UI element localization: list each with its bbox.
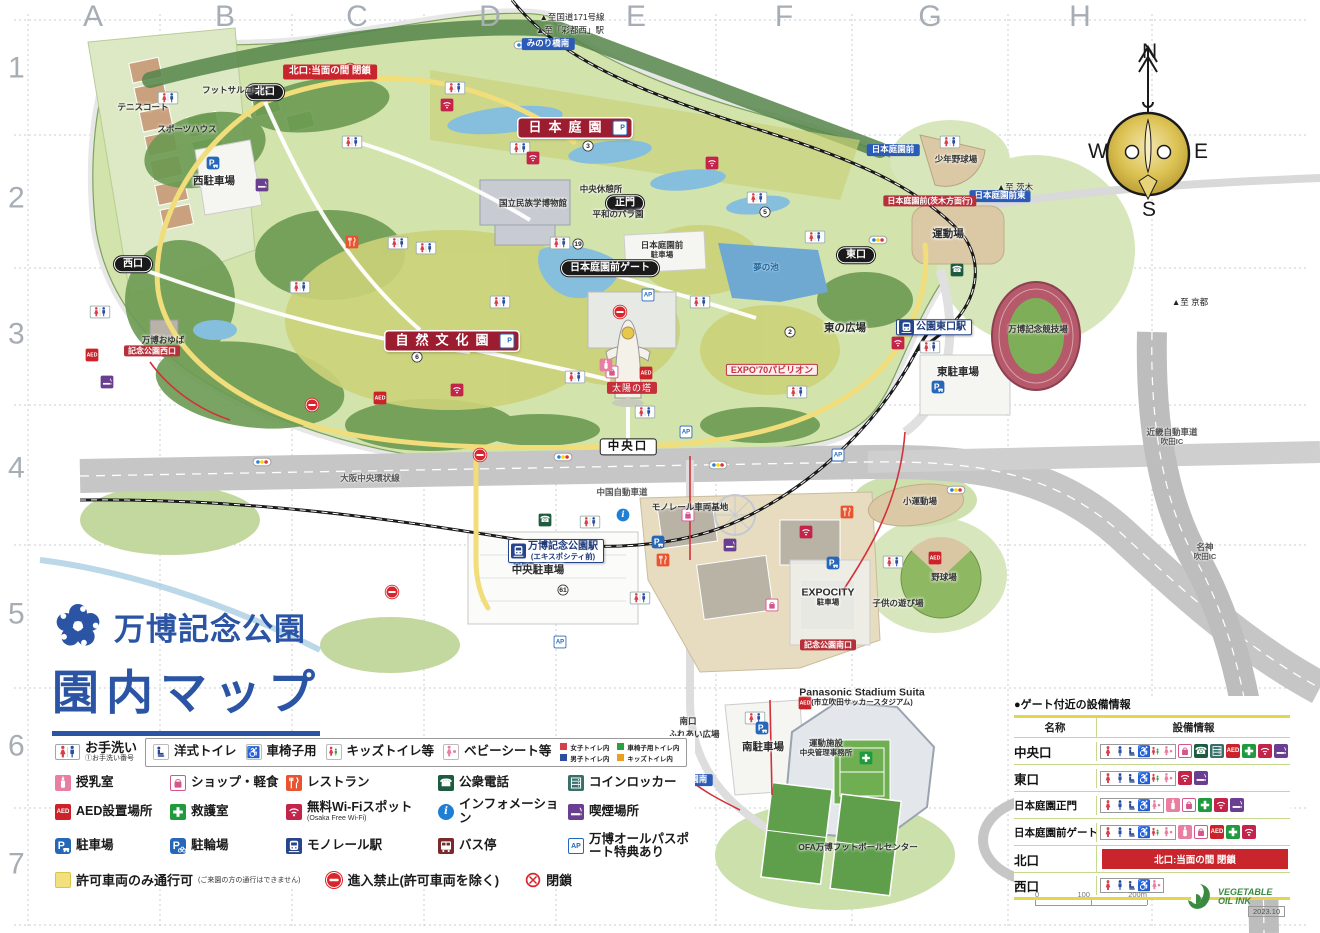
legend-label: 洋式トイレ — [174, 745, 237, 759]
scale-bar: 0100200m — [1035, 890, 1147, 906]
legend-item: お手洗い①お手洗い番号 — [55, 741, 137, 763]
color-key-item: 女子トイレ内 — [560, 742, 609, 752]
grid-column-label: H — [1069, 0, 1091, 34]
smoking-icon — [1274, 744, 1288, 758]
legend-label: 救護室 — [191, 805, 229, 819]
legend-item: ☎公衆電話 — [438, 775, 566, 791]
legend-label: 進入禁止(許可車両を除く) — [347, 870, 499, 889]
grid-row-label: 1 — [8, 51, 25, 85]
gate-facilities: 北口:当面の間 閉鎖 — [1096, 846, 1290, 872]
baby-icon — [1162, 772, 1174, 785]
toilet-icon — [55, 744, 80, 760]
nursing-icon — [1166, 798, 1180, 812]
smoking-icon — [1230, 798, 1244, 812]
page-title: 園内マップ — [52, 654, 322, 723]
gate-facilities-table: ●ゲート付近の設備情報 名称 設備情報 中央口♿☎AED東口♿日本庭園正門♿日本… — [1014, 696, 1290, 900]
wheelchair-icon: ♿ — [1138, 826, 1150, 839]
legend-item: 救護室 — [170, 798, 284, 826]
baby-icon — [1150, 879, 1162, 892]
gate-toilet-group: ♿ — [1100, 744, 1176, 759]
edition-date: 2023.10 — [1248, 906, 1285, 917]
smoking-icon — [568, 804, 584, 820]
gate-facilities: ♿☎AED — [1096, 742, 1290, 761]
compass-north-label: N — [1142, 40, 1157, 64]
gate-col-facilities: 設備情報 — [1096, 718, 1290, 737]
legend-sublabel: (ご来園の方の通行はできません) — [198, 875, 300, 885]
legend-sublabel: ①お手洗い番号 — [85, 755, 137, 763]
wifi-icon — [1242, 825, 1256, 839]
legend-item: AP万博オールパスポート特典あり — [568, 833, 695, 861]
male-icon — [1114, 745, 1126, 758]
aed-icon: AED — [55, 804, 71, 820]
compass-south-label: S — [1142, 198, 1156, 222]
legend-item: 洋式トイレ — [153, 744, 237, 760]
scale-tick-label: 0 — [1035, 890, 1039, 899]
gate-facilities: ♿ — [1096, 796, 1290, 815]
gate-toilet-group: ♿ — [1100, 825, 1176, 840]
wheelchair-icon: ♿ — [1138, 799, 1150, 812]
grid-column-label: F — [775, 0, 793, 34]
compass-west-label: W — [1088, 140, 1108, 164]
gate-facilities: ♿ — [1096, 769, 1290, 788]
wheelchair-icon: ♿ — [1138, 772, 1150, 785]
legend-label: レストラン — [307, 776, 370, 790]
legend-label: バス停 — [459, 839, 497, 853]
male-icon — [1114, 826, 1126, 839]
female-icon — [1102, 799, 1114, 812]
legend-label: 無料Wi-Fiスポット — [307, 801, 412, 815]
legend-label: 授乳室 — [76, 776, 114, 790]
legend-item: ♿車椅子用 — [246, 744, 317, 760]
grid-column-label: C — [346, 0, 368, 34]
gate-table-header: 名称 設備情報 — [1014, 715, 1290, 738]
scale-bar-labels: 0100200m — [1035, 890, 1147, 899]
nursing-icon — [1178, 825, 1192, 839]
shop-icon — [170, 775, 186, 791]
firstaid-icon — [170, 804, 186, 820]
western-icon — [153, 744, 169, 760]
firstaid-icon — [1198, 798, 1212, 812]
legend-item: ショップ・軽食 — [170, 775, 284, 791]
aed-icon: AED — [1210, 825, 1224, 839]
legend-label: 駐輪場 — [191, 839, 229, 853]
legend-label: 公衆電話 — [459, 776, 509, 790]
gate-name: 北口 — [1014, 850, 1096, 869]
legend-item: P駐輪場 — [170, 833, 284, 861]
legend-sublabel: (Osaka Free Wi-Fi) — [307, 815, 412, 823]
female-icon — [1102, 745, 1114, 758]
shop-icon — [1194, 825, 1208, 839]
park-map-page: ABCDEFGH 1234567 AEDAEDAEDAEDAEDPPPPPPPA… — [0, 0, 1320, 933]
wifi-icon — [286, 804, 302, 820]
color-swatch — [560, 743, 567, 750]
monorail-icon — [286, 838, 302, 854]
kids-icon — [326, 744, 342, 760]
color-key-item: キッズトイレ内 — [617, 753, 679, 763]
legend-item: コインロッカー — [568, 775, 695, 791]
scale-tick-label: 200m — [1128, 890, 1147, 899]
scale-tick-label: 100 — [1077, 890, 1090, 899]
wifi-icon — [1258, 744, 1272, 758]
grid-column-label: G — [918, 0, 941, 34]
firstaid-icon — [1226, 825, 1240, 839]
western-icon — [1126, 826, 1138, 839]
legend-item: 授乳室 — [55, 775, 168, 791]
wheelchair-icon: ♿ — [1138, 745, 1150, 758]
gate-table-row: 中央口♿☎AED — [1014, 738, 1290, 765]
legend-label: 万博オールパスポート特典あり — [589, 833, 695, 861]
grid-row-label: 2 — [8, 181, 25, 215]
gate-toilet-group: ♿ — [1100, 771, 1176, 786]
female-icon — [1102, 772, 1114, 785]
baby-icon — [1162, 745, 1174, 758]
park-name: 万博記念公園 — [114, 604, 306, 649]
kids-icon — [1150, 826, 1162, 839]
legend-label: 車椅子用 — [267, 745, 317, 759]
grid-column-label: A — [83, 0, 103, 34]
restaurant-icon — [286, 775, 302, 791]
legend-label: 許可車両のみ通行可 — [76, 870, 193, 889]
color-key-item: 車椅子用トイレ内 — [617, 742, 679, 752]
legend-item: 無料Wi-Fiスポット(Osaka Free Wi-Fi) — [286, 798, 436, 826]
legend-label: コインロッカー — [589, 776, 677, 790]
shop-icon — [1182, 798, 1196, 812]
legend-toilet-color-key: 女子トイレ内車椅子用トイレ内男子トイレ内キッズトイレ内 — [560, 742, 679, 763]
wifi-icon — [1178, 771, 1192, 785]
grid-row-label: 4 — [8, 451, 25, 485]
legend-label: お手洗い — [85, 741, 137, 755]
color-swatch — [560, 754, 567, 761]
gate-table-row: 日本庭園前ゲート♿AED — [1014, 819, 1290, 846]
kids-icon — [1150, 745, 1162, 758]
grid-row-label: 6 — [8, 729, 25, 763]
wifi-icon — [1214, 798, 1228, 812]
legend-item: ベビーシート等 — [443, 744, 551, 760]
legend-item: P駐車場 — [55, 833, 168, 861]
female-icon — [1102, 826, 1114, 839]
leaf-icon — [1185, 882, 1215, 912]
phone-icon: ☎ — [1194, 744, 1208, 758]
aed-icon: AED — [1226, 744, 1240, 758]
legend-label: 喫煙場所 — [589, 805, 639, 819]
closed-icon — [525, 872, 541, 888]
male-icon — [1114, 799, 1126, 812]
bikeparking-icon: P — [170, 838, 186, 854]
color-swatch — [617, 754, 624, 761]
gate-facilities: ♿AED — [1096, 823, 1290, 842]
gate-table-row: 日本庭園正門♿ — [1014, 792, 1290, 819]
wheelchair-icon: ♿ — [246, 744, 262, 760]
legend-label: AED設置場所 — [76, 805, 152, 819]
gate-table-title: ●ゲート付近の設備情報 — [1014, 696, 1290, 712]
scale-bar-line — [1035, 900, 1147, 906]
gate-table-rows: 中央口♿☎AED東口♿日本庭園正門♿日本庭園前ゲート♿AED北口北口:当面の間 … — [1014, 738, 1290, 900]
parking-icon: P — [55, 838, 71, 854]
legend-route-item: 許可車両のみ通行可(ご来園の方の通行はできません) — [55, 870, 300, 889]
gate-closed-banner: 北口:当面の間 閉鎖 — [1102, 849, 1288, 869]
color-swatch — [617, 743, 624, 750]
legend: お手洗い①お手洗い番号洋式トイレ♿車椅子用キッズトイレ等ベビーシート等女子トイレ… — [55, 736, 695, 889]
gate-name: 日本庭園前ゲート — [1014, 825, 1096, 840]
western-icon — [1126, 799, 1138, 812]
legend-toilet-row: お手洗い①お手洗い番号洋式トイレ♿車椅子用キッズトイレ等ベビーシート等女子トイレ… — [55, 736, 695, 768]
legend-grid: 授乳室ショップ・軽食レストラン☎公衆電話コインロッカーAEDAED設置場所救護室… — [55, 775, 695, 860]
western-icon — [1126, 772, 1138, 785]
male-icon — [1114, 772, 1126, 785]
grid-column-label: E — [626, 0, 646, 34]
svg-text:P: P — [173, 840, 180, 852]
info-icon: i — [438, 804, 454, 820]
bus-icon — [438, 838, 454, 854]
legend-label: ショップ・軽食 — [191, 776, 279, 790]
compass-rose-icon — [1093, 42, 1203, 222]
legend-item: AEDAED設置場所 — [55, 798, 168, 826]
gate-toilet-group: ♿ — [1100, 798, 1164, 813]
gate-table-row: 北口北口:当面の間 閉鎖 — [1014, 846, 1290, 873]
western-icon — [1126, 745, 1138, 758]
firstaid-icon — [1242, 744, 1256, 758]
baby-icon — [443, 744, 459, 760]
legend-label: インフォメーション — [459, 798, 566, 826]
shop-icon — [1178, 744, 1192, 758]
grid-column-label: B — [215, 0, 235, 34]
legend-item: キッズトイレ等 — [326, 744, 435, 760]
gate-name: 中央口 — [1014, 742, 1096, 761]
title-block: 万博記念公園 園内マップ — [52, 600, 322, 736]
legend-item: レストラン — [286, 775, 436, 791]
noentry-icon — [326, 872, 342, 888]
legend-toilet-variants-box: 洋式トイレ♿車椅子用キッズトイレ等ベビーシート等女子トイレ内車椅子用トイレ内男子… — [145, 738, 687, 767]
locker-icon — [1210, 744, 1224, 758]
yellowroute-icon — [55, 872, 71, 888]
baby-icon — [1162, 826, 1174, 839]
grid-row-label: 5 — [8, 597, 25, 631]
legend-label: キッズトイレ等 — [347, 745, 435, 759]
kids-icon — [1150, 772, 1162, 785]
nursing-icon — [55, 775, 71, 791]
legend-item: 喫煙場所 — [568, 798, 695, 826]
legend-item: バス停 — [438, 833, 566, 861]
legend-route-item: 進入禁止(許可車両を除く) — [326, 870, 499, 889]
gate-col-name: 名称 — [1014, 718, 1096, 737]
gate-name: 日本庭園正門 — [1014, 798, 1096, 813]
phone-icon: ☎ — [438, 775, 454, 791]
legend-label: 閉鎖 — [546, 870, 572, 889]
gate-table-row: 東口♿ — [1014, 765, 1290, 792]
smoking-icon — [1194, 771, 1208, 785]
legend-label: 駐車場 — [76, 839, 114, 853]
legend-label: ベビーシート等 — [464, 745, 551, 759]
locker-icon — [568, 775, 584, 791]
compass-east-label: E — [1194, 140, 1208, 164]
legend-item: モノレール駅 — [286, 833, 436, 861]
gate-name: 東口 — [1014, 769, 1096, 788]
legend-item: iインフォメーション — [438, 798, 566, 826]
grid-row-label: 3 — [8, 317, 25, 351]
legend-label: モノレール駅 — [307, 839, 382, 853]
grid-row-label: 7 — [8, 847, 25, 881]
ap-icon: AP — [568, 838, 584, 854]
color-key-item: 男子トイレ内 — [560, 753, 609, 763]
baby-icon — [1150, 799, 1162, 812]
legend-route-item: 閉鎖 — [525, 870, 572, 889]
grid-column-label: D — [479, 0, 501, 34]
park-logo-icon — [52, 600, 104, 652]
legend-route-row: 許可車両のみ通行可(ご来園の方の通行はできません)進入禁止(許可車両を除く)閉鎖 — [55, 870, 695, 889]
